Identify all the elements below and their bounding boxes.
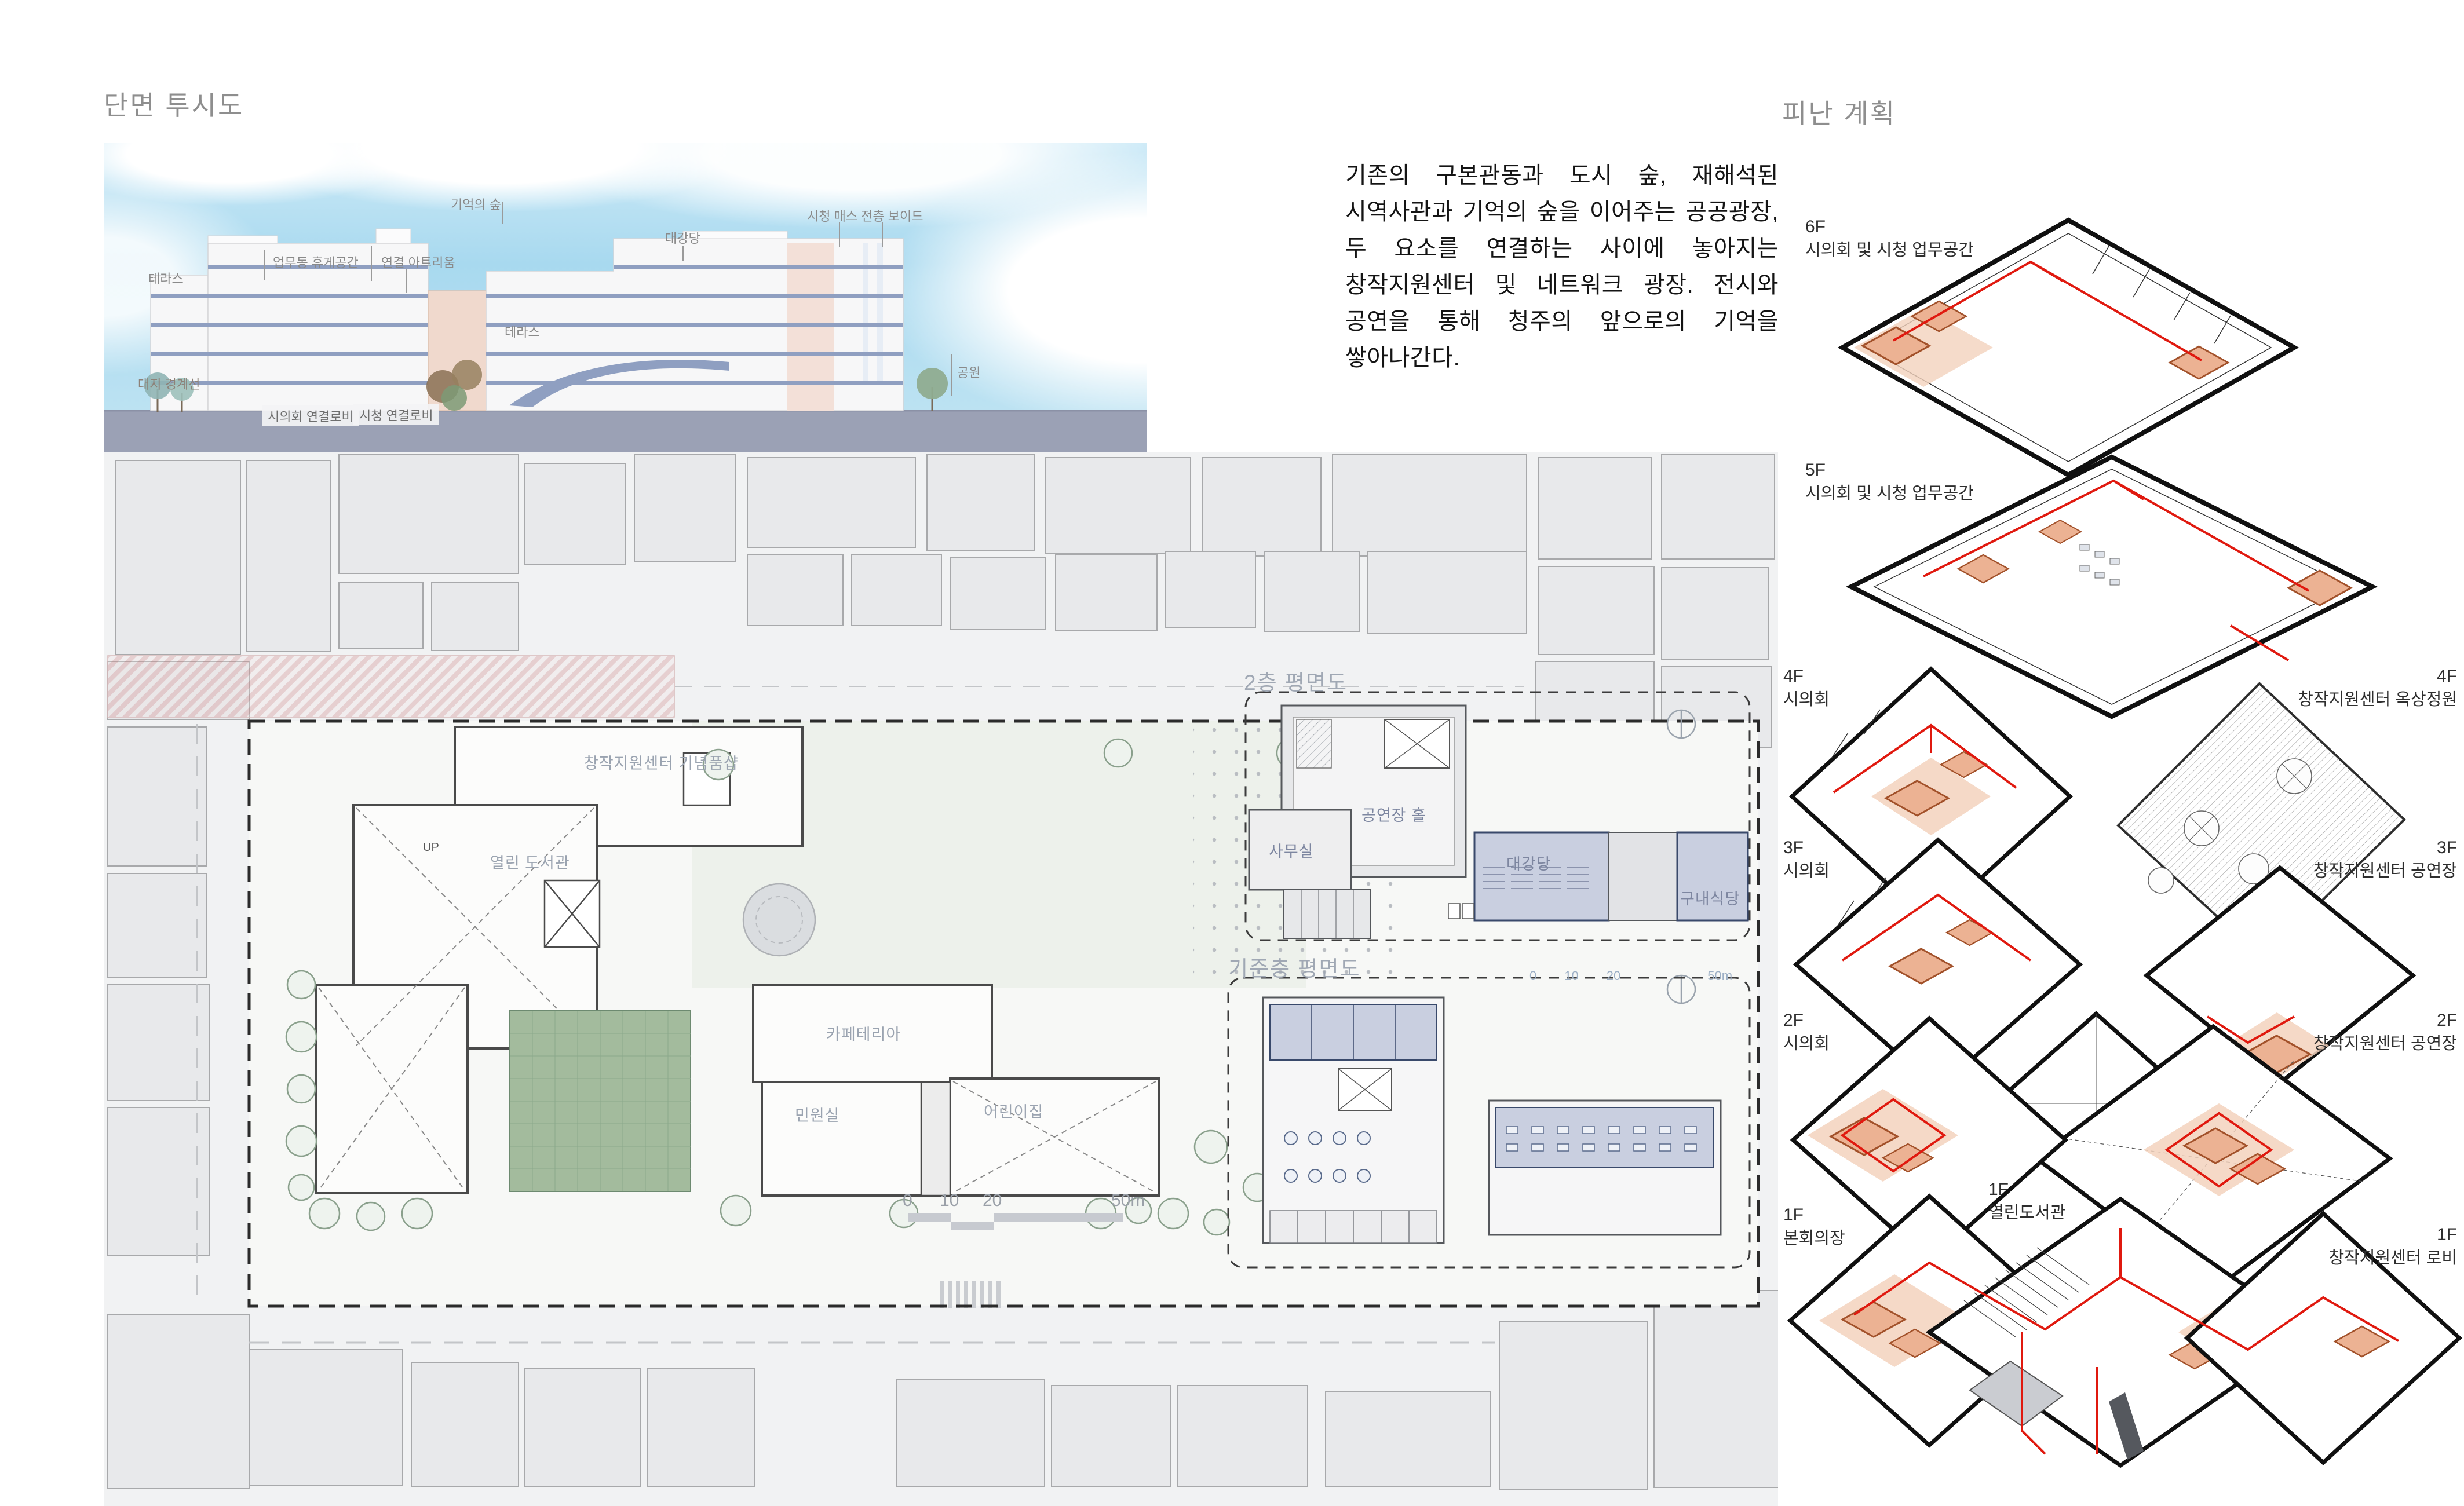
- floor-name: 시의회: [1783, 860, 1830, 883]
- floor-label-1f-library: 1F 열린도서관: [1988, 1178, 2065, 1224]
- label-site-boundary: 대지 경계선: [138, 374, 200, 393]
- presentation-board: 단면 투시도: [0, 0, 2464, 1506]
- room-label-office: 사무실: [1269, 839, 1314, 861]
- floor-id: 3F: [1783, 836, 1830, 860]
- room-label-staff-cafeteria: 구내식당: [1680, 886, 1740, 909]
- floor-name: 본회의장: [1783, 1227, 1845, 1250]
- scalebar-segment: [994, 1213, 1123, 1222]
- scalebar-20: 20: [983, 1191, 1002, 1211]
- floor-name: 창작지원센터 로비: [2329, 1247, 2458, 1270]
- inset-scale-50: 50m: [1707, 968, 1732, 984]
- section-perspective-drawing: [104, 143, 1147, 454]
- scalebar-segment: [908, 1213, 951, 1222]
- floor-label-2f-theater: 2F 창작지원센터 공연장: [2313, 1009, 2457, 1055]
- room-label-open-library: 열린 도서관: [490, 850, 570, 873]
- floor-label-3f-council: 3F 시의회: [1783, 836, 1830, 883]
- leader-line: [371, 246, 372, 281]
- label-terrace-b: 테라스: [505, 322, 540, 341]
- floor-id: 1F: [2329, 1223, 2458, 1247]
- inset-scale-20: 20: [1607, 968, 1620, 984]
- label-terrace-a: 테라스: [148, 269, 184, 287]
- floor-label-1f-chamber: 1F 본회의장: [1783, 1204, 1845, 1250]
- floor-name: 창작지원센터 옥상정원: [2298, 688, 2457, 711]
- label-memory-forest: 기억의 숲: [451, 195, 501, 213]
- room-label-grand-auditorium: 대강당: [1506, 851, 1552, 874]
- leader-line: [839, 222, 840, 247]
- leader-line: [264, 250, 265, 280]
- floor-name: 시의회 및 시청 업무공간: [1805, 482, 1974, 505]
- floor-label-6f: 6F 시의회 및 시청 업무공간: [1805, 215, 1974, 262]
- leader-line: [951, 354, 952, 396]
- site-plan-drawing: [104, 452, 1778, 1506]
- scalebar-50: 50m: [1111, 1191, 1145, 1211]
- label-link-atrium: 연결 아트리움: [381, 253, 455, 271]
- floor-id: 6F: [1805, 215, 1974, 239]
- floor-name: 시의회 및 시청 업무공간: [1805, 239, 1974, 262]
- label-cityhall-void: 시청 매스 전층 보이드: [807, 206, 923, 225]
- project-description: 기존의 구본관동과 도시 숲, 재해석된 시역사관과 기억의 숲을 이어주는 공…: [1345, 158, 1779, 376]
- label-auditorium: 대강당: [665, 228, 700, 247]
- floor-label-4f-roofgarden: 4F 창작지원센터 옥상정원: [2298, 665, 2457, 711]
- floor-id: 1F: [1988, 1178, 2065, 1201]
- leader-line: [882, 222, 883, 247]
- inset-scale-0: 0: [1529, 968, 1536, 984]
- floor-id: 3F: [2313, 836, 2457, 860]
- section-panel-title: 단면 투시도: [104, 85, 244, 123]
- section-memory-forest-atrium: [426, 291, 486, 411]
- room-label-cafeteria: 카페테리아: [826, 1022, 901, 1044]
- inset-2f-title: 2층 평면도: [1244, 665, 1348, 696]
- pink-pedestrian-road: [108, 656, 674, 717]
- stair-up-label: UP: [423, 841, 439, 854]
- floor-id: 2F: [2313, 1009, 2457, 1032]
- leader-line: [406, 269, 407, 293]
- leader-line: [502, 202, 503, 224]
- leader-line: [682, 246, 684, 261]
- scalebar-10: 10: [940, 1191, 959, 1211]
- floor-name: 창작지원센터 공연장: [2313, 860, 2457, 883]
- section-building-cityhall: [486, 231, 903, 411]
- label-office-lounge: 업무동 휴게공간: [273, 253, 359, 271]
- floor-label-2f-council: 2F 시의회: [1783, 1009, 1830, 1055]
- inset-scale-10: 10: [1564, 968, 1578, 984]
- floor-label-1f-lobby: 1F 창작지원센터 로비: [2329, 1223, 2458, 1270]
- evacuation-title: 피난 계획: [1782, 93, 1896, 131]
- floor-name: 창작지원센터 공연장: [2313, 1032, 2457, 1055]
- room-label-gift-shop: 창작지원센터 기념품샵: [584, 751, 739, 773]
- label-council-link-lobby: 시의회 연결로비: [262, 405, 359, 426]
- room-label-civil-office: 민원실: [795, 1103, 840, 1125]
- floor-label-3f-theater: 3F 창작지원센터 공연장: [2313, 836, 2457, 883]
- scalebar-segment: [951, 1222, 994, 1230]
- floor-id: 5F: [1805, 459, 1974, 482]
- room-label-daycare: 어린이집: [984, 1099, 1043, 1122]
- floor-name: 열린도서관: [1988, 1201, 2065, 1224]
- room-label-performance-hall: 공연장 홀: [1361, 803, 1426, 825]
- section-ground: [104, 411, 1147, 454]
- label-park: 공원: [957, 363, 980, 381]
- inset-typical-title: 기준층 평면도: [1228, 951, 1361, 982]
- floor-id: 2F: [1783, 1009, 1830, 1032]
- green-courtyard: [510, 1011, 691, 1191]
- floor-name: 시의회: [1783, 688, 1830, 711]
- floor-id: 4F: [1783, 665, 1830, 688]
- inset-scalebar: 0 10 20 50m: [1529, 968, 1732, 984]
- floor-id: 1F: [1783, 1204, 1845, 1227]
- floor-label-4f-council: 4F 시의회: [1783, 665, 1830, 711]
- circular-plaza: [743, 884, 815, 956]
- label-cityhall-link-lobby: 시청 연결로비: [353, 404, 439, 425]
- floor-name: 시의회: [1783, 1032, 1830, 1055]
- floor-id: 4F: [2298, 665, 2457, 688]
- floor-label-5f: 5F 시의회 및 시청 업무공간: [1805, 459, 1974, 505]
- scalebar-0: 0: [903, 1191, 912, 1211]
